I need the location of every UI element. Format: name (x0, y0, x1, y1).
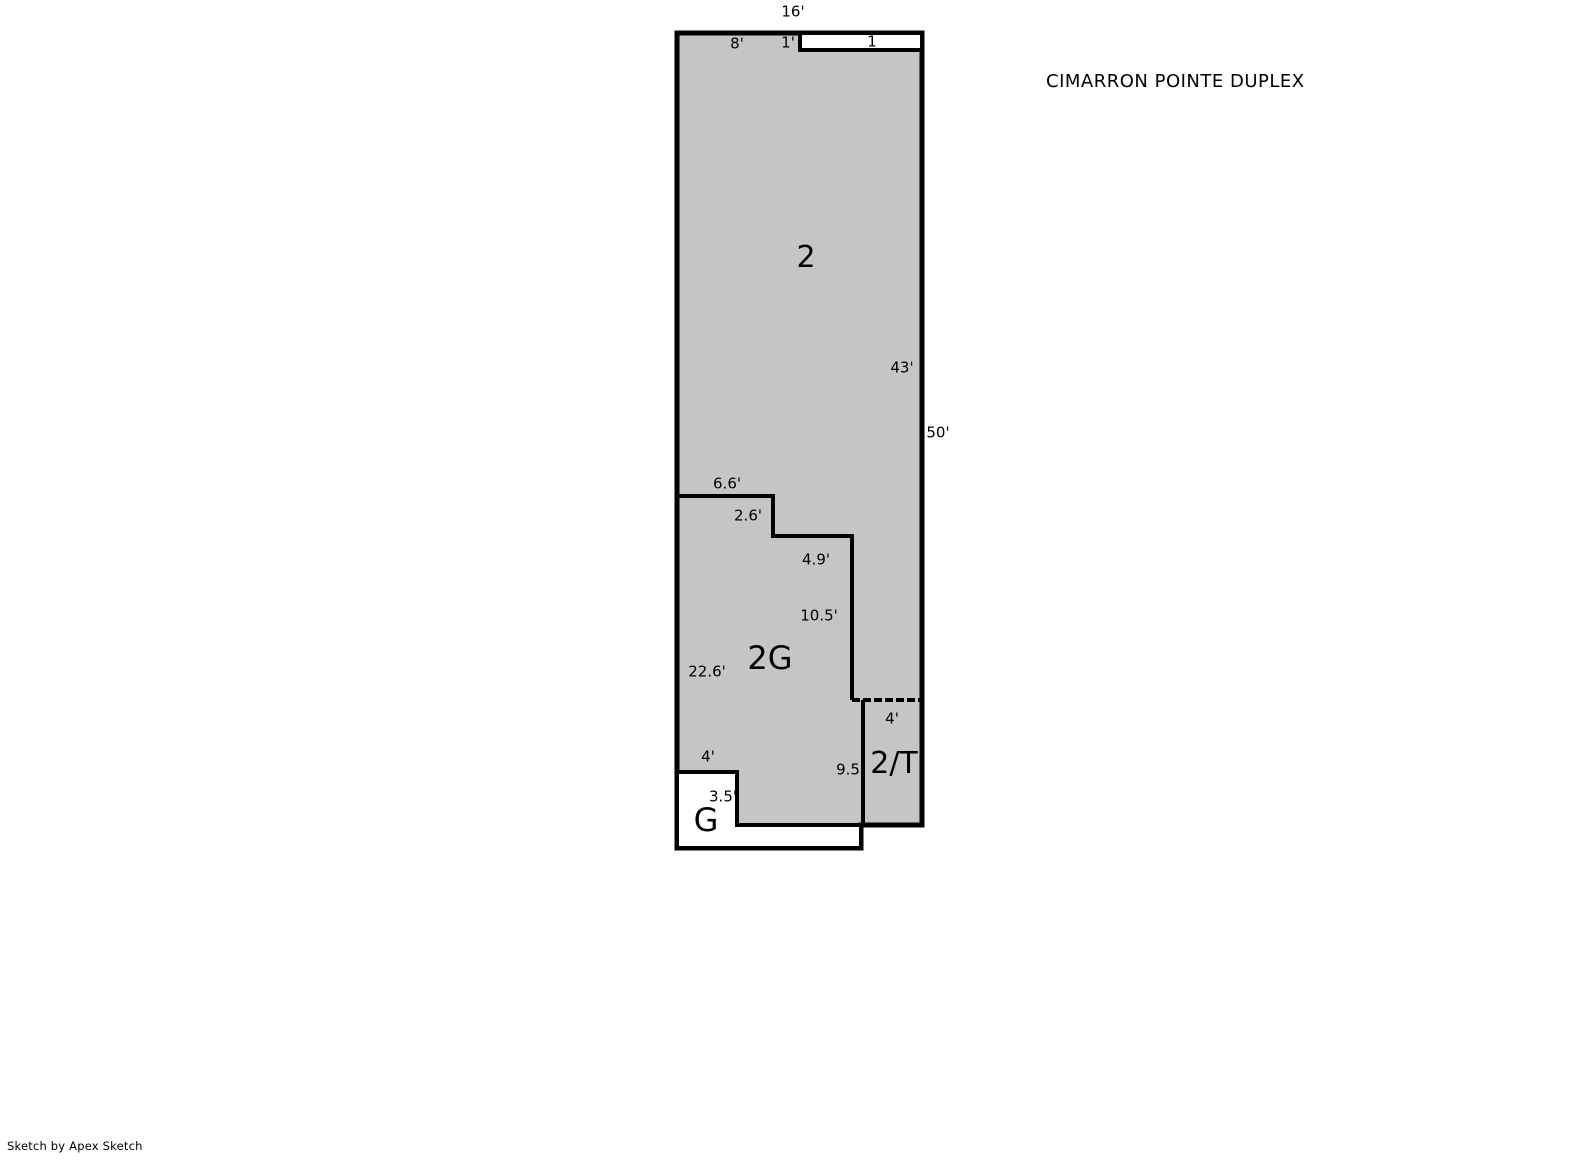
dim-porch-depth: 1' (781, 36, 795, 51)
dim-step2-horizontal: 4.9' (802, 553, 830, 568)
sketch-title: CIMARRON POINTE DUPLEX (1046, 71, 1305, 92)
dim-left-wall-2g: 22.6' (688, 665, 726, 680)
porch-notch (800, 33, 922, 50)
porch-label: 1 (867, 35, 877, 50)
dim-right-wall-total: 50' (926, 426, 949, 441)
floorplan-sketch (0, 0, 1585, 1163)
unit2-label: 2 (796, 243, 815, 273)
dim-terrace-width: 4' (885, 712, 899, 727)
sketch-page: 16' 8' 1' 1 43' 50' 6.6' 2.6' 4.9' 10.5'… (0, 0, 1585, 1163)
dim-top-width: 16' (781, 5, 804, 20)
unit2t-label: 2/T (870, 749, 918, 779)
dim-step1-horizontal: 6.6' (713, 477, 741, 492)
unit2g-label: 2G (747, 642, 792, 674)
apex-sketch-credit: Sketch by Apex Sketch (7, 1139, 143, 1153)
garage-label: G (694, 804, 719, 836)
dim-step2-vertical: 10.5' (800, 609, 838, 624)
dim-right-wall-upper: 43' (890, 361, 913, 376)
dim-step1-vertical: 2.6' (734, 509, 762, 524)
dim-top-segment-left: 8' (730, 37, 744, 52)
dim-garage-width: 4' (701, 750, 715, 765)
dim-terrace-height: 9.5 (836, 763, 860, 778)
